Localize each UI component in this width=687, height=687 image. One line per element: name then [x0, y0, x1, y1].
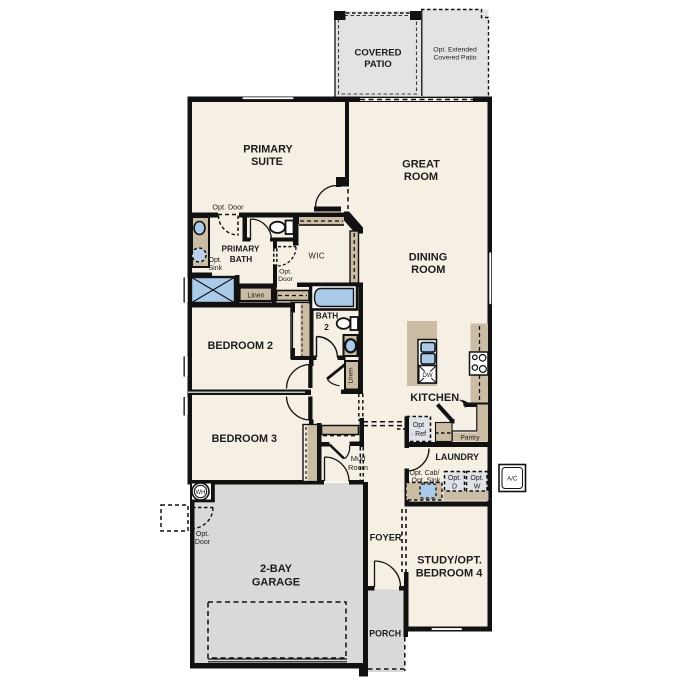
svg-text:BATH: BATH: [230, 254, 252, 264]
svg-text:Linen: Linen: [247, 293, 264, 300]
svg-text:D: D: [452, 484, 457, 491]
svg-text:STUDY/OPT.: STUDY/OPT.: [417, 555, 482, 567]
svg-text:FOYER: FOYER: [370, 532, 402, 542]
svg-text:Door: Door: [278, 276, 293, 283]
svg-text:KITCHEN: KITCHEN: [410, 392, 459, 404]
svg-text:WIC: WIC: [309, 252, 325, 261]
svg-text:Opt. Cab/: Opt. Cab/: [410, 470, 440, 477]
svg-text:BEDROOM 2: BEDROOM 2: [208, 340, 273, 352]
svg-text:PRIMARY: PRIMARY: [243, 144, 293, 156]
svg-text:WH: WH: [196, 490, 206, 496]
svg-text:DINING: DINING: [409, 251, 448, 263]
svg-text:· Ref: · Ref: [411, 431, 426, 438]
svg-text:Sink: Sink: [209, 265, 223, 272]
svg-text:Pantry: Pantry: [460, 435, 480, 442]
svg-text:BEDROOM 3: BEDROOM 3: [212, 433, 277, 445]
svg-text:SUITE: SUITE: [251, 156, 283, 168]
svg-text:ROOM: ROOM: [411, 264, 445, 276]
svg-text:PATIO: PATIO: [364, 59, 392, 70]
svg-text:PORCH: PORCH: [369, 628, 401, 638]
svg-text:DW: DW: [422, 372, 432, 379]
svg-text:Opt.: Opt.: [470, 475, 483, 482]
svg-text:BEDROOM 4: BEDROOM 4: [416, 568, 484, 580]
svg-text:W: W: [474, 484, 481, 491]
svg-text:Covered Patio: Covered Patio: [433, 55, 476, 62]
svg-text:Opt. Door: Opt. Door: [212, 203, 244, 212]
svg-text:PRIMARY: PRIMARY: [222, 244, 260, 254]
svg-text:LAUNDRY: LAUNDRY: [435, 452, 479, 462]
svg-text:Opt.: Opt.: [209, 257, 222, 264]
svg-text:2-BAY: 2-BAY: [260, 563, 293, 575]
svg-text:COVERED: COVERED: [355, 48, 402, 59]
svg-text:Door: Door: [195, 539, 211, 546]
svg-text:ROOM: ROOM: [404, 171, 438, 183]
svg-text:Opt.: Opt.: [279, 269, 292, 276]
svg-text:Room: Room: [348, 463, 368, 472]
svg-text:Opt.: Opt.: [448, 475, 461, 482]
svg-text:Opt.: Opt.: [196, 531, 209, 538]
svg-text:A/C: A/C: [507, 477, 518, 483]
svg-text:2: 2: [324, 322, 329, 332]
svg-text:Opt. Extended: Opt. Extended: [433, 47, 477, 54]
svg-text:GREAT: GREAT: [402, 159, 440, 171]
svg-text:Opt: Opt: [413, 422, 424, 429]
svg-text:BATH: BATH: [316, 311, 338, 321]
svg-text:GARAGE: GARAGE: [252, 577, 300, 589]
svg-text:Linen: Linen: [348, 367, 355, 383]
